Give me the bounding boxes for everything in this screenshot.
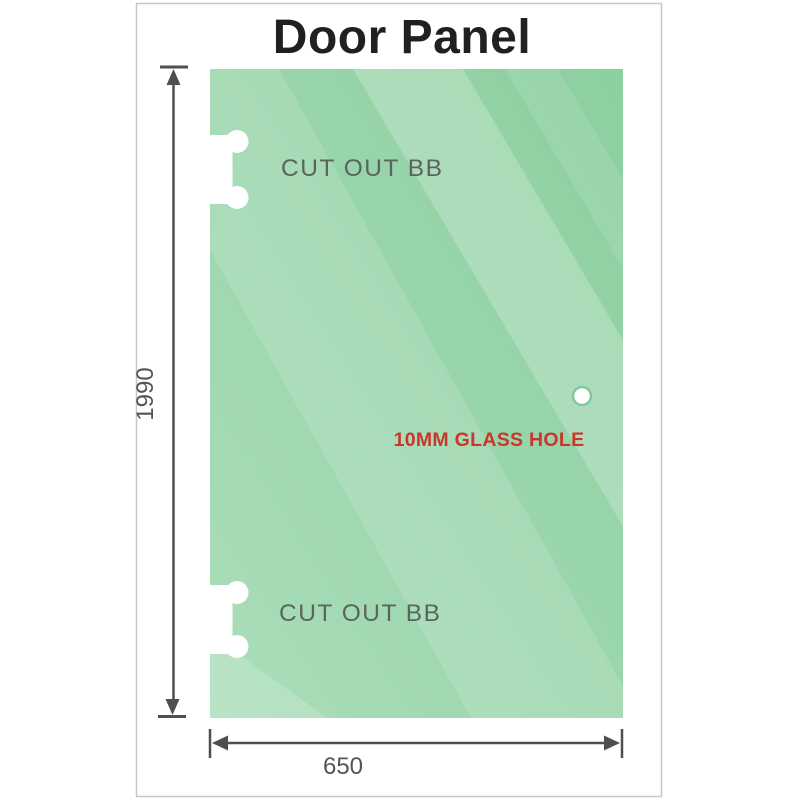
door-panel-diagram: Door Panel [0,0,800,800]
cutout-bb-top-lobe-upper [226,130,249,153]
cutout-bb-top-lobe-lower [226,186,249,209]
height-dimension-label: 1990 [132,367,159,420]
glass-hole-label: 10MM GLASS HOLE [394,429,585,451]
cutout-bb-bottom-label: CUT OUT BB [279,600,441,627]
glass-panel: CUT OUT BB CUT OUT BB 10MM GLASS HOLE [109,69,800,718]
width-dimension-label: 650 [323,753,363,780]
cutout-bb-bottom-lobe-upper [226,581,249,604]
page-title: Door Panel [273,11,531,64]
diagram-page: Door Panel [0,0,800,800]
glass-hole [573,387,591,405]
cutout-bb-bottom-lobe-lower [226,635,249,658]
cutout-bb-top-label: CUT OUT BB [281,155,443,182]
